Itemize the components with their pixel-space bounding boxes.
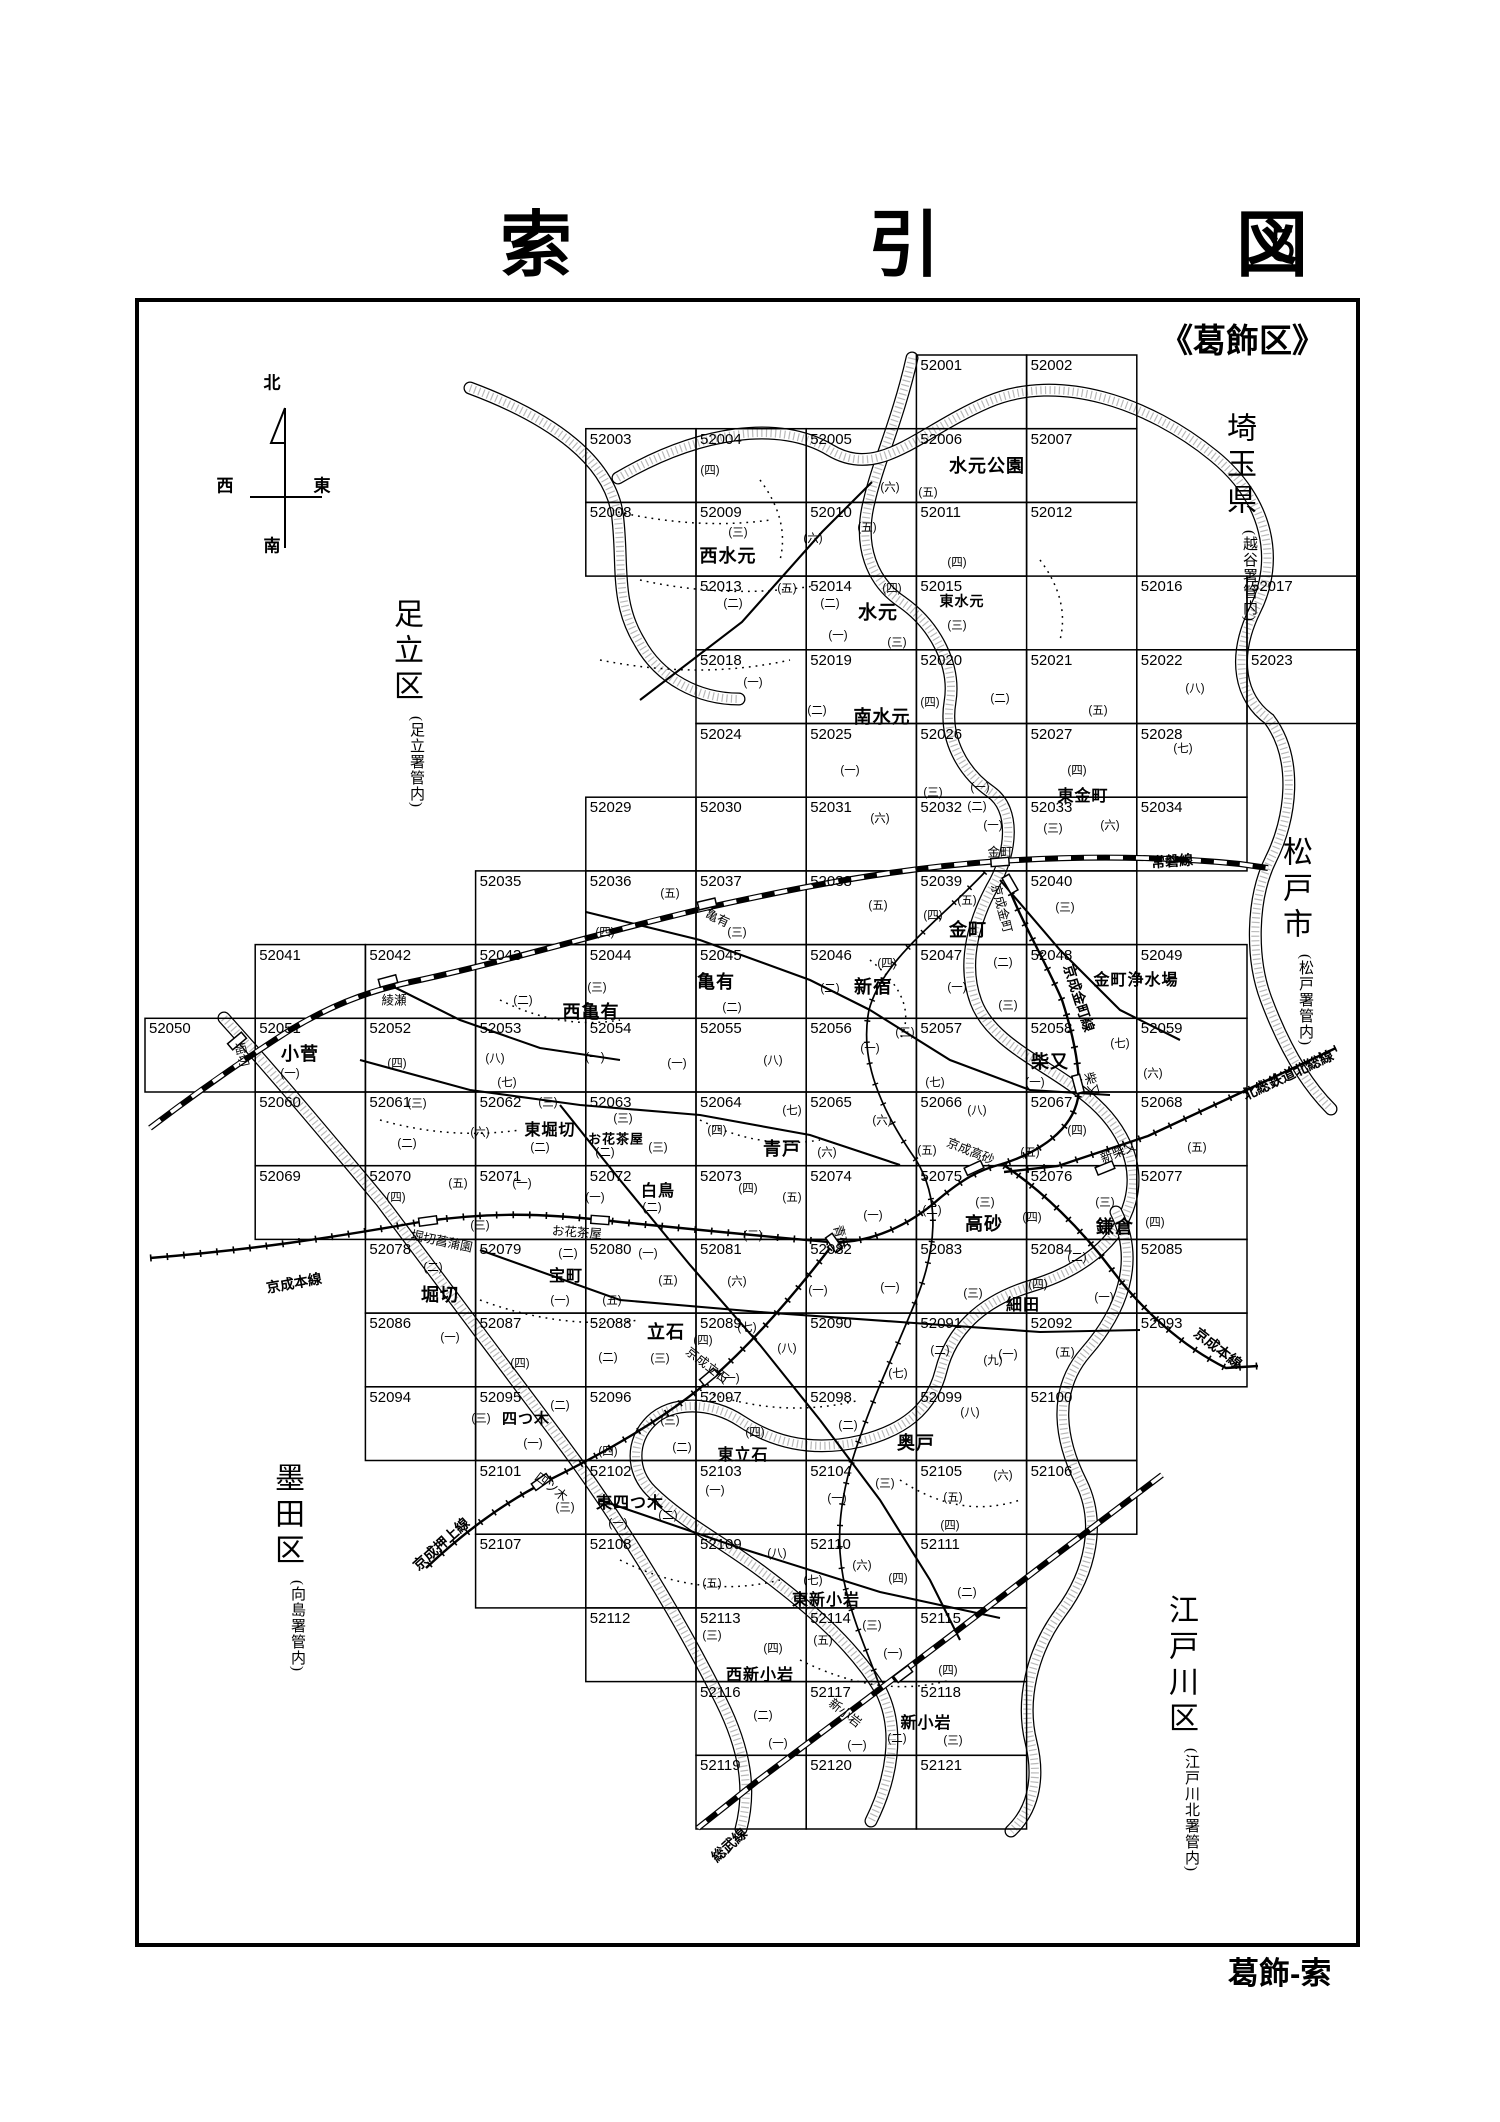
chome-label: (一)	[638, 1245, 657, 1261]
chome-label: (二)	[672, 1439, 691, 1455]
chome-label: (一)	[827, 1490, 846, 1506]
chome-label: (六)	[880, 479, 899, 495]
cell-number-52074: 52074	[810, 1168, 852, 1185]
chome-label: (一)	[550, 1292, 569, 1308]
chome-label: (三)	[587, 979, 606, 995]
cell-number-52095: 52095	[480, 1389, 522, 1406]
cell-number-52022: 52022	[1141, 652, 1183, 669]
cell-number-52107: 52107	[480, 1536, 522, 1553]
chome-label: (一)	[608, 1515, 627, 1531]
chome-label: (八)	[1185, 680, 1204, 696]
chome-label: (三)	[728, 524, 747, 540]
cell-number-52050: 52050	[149, 1020, 191, 1037]
cell-number-52048: 52048	[1031, 947, 1073, 964]
chome-label: (一)	[883, 1645, 902, 1661]
footer-label: 葛飾-索	[1228, 1948, 1331, 1993]
cell-number-52040: 52040	[1031, 873, 1073, 890]
chome-label: (七)	[1173, 740, 1192, 756]
cell-number-52119: 52119	[700, 1757, 741, 1774]
chome-label: (三)	[470, 1217, 489, 1233]
chome-label: (一)	[840, 762, 859, 778]
chome-label: (一)	[1094, 1289, 1113, 1305]
town-label-東金町: 東金町	[1057, 782, 1108, 806]
chome-label: (三)	[702, 1627, 721, 1643]
chome-label: (二)	[887, 1730, 906, 1746]
chome-label: (八)	[960, 1404, 979, 1420]
neighbor-region-足立区: 足立区(足立署管内)	[383, 598, 427, 808]
compass-label-南: 南	[264, 532, 281, 557]
chome-label: (二)	[930, 1342, 949, 1358]
compass-label-北: 北	[264, 369, 281, 394]
cell-number-52045: 52045	[700, 947, 742, 964]
cell-number-52025: 52025	[810, 726, 852, 743]
cell-number-52046: 52046	[810, 947, 852, 964]
chome-label: (一)	[705, 1482, 724, 1498]
chome-label: (二)	[550, 1397, 569, 1413]
station-label-お花茶屋: お花茶屋	[551, 1220, 602, 1242]
cell-number-52036: 52036	[590, 873, 632, 890]
chome-label: (一)	[808, 1282, 827, 1298]
cell-number-52020: 52020	[920, 652, 962, 669]
cell-number-52047: 52047	[920, 947, 962, 964]
chome-boundary-5	[1040, 560, 1063, 640]
town-label-細田: 細田	[1006, 1291, 1040, 1315]
neighbor-region-main: 松戸市	[1272, 836, 1316, 944]
cell-number-52057: 52057	[920, 1020, 962, 1037]
chome-label: (二)	[838, 1417, 857, 1433]
cell-number-52007: 52007	[1031, 431, 1073, 448]
cell-number-52087: 52087	[480, 1315, 522, 1332]
chome-label: (四)	[693, 1332, 712, 1348]
town-label-四つ木: 四つ木	[502, 1408, 550, 1429]
cell-number-52078: 52078	[369, 1241, 411, 1258]
chome-label: (一)	[880, 1279, 899, 1295]
cell-number-52005: 52005	[810, 431, 852, 448]
chome-label: (五)	[1187, 1139, 1206, 1155]
chome-label: (二)	[993, 954, 1012, 970]
chome-label: (四)	[738, 1180, 757, 1196]
station-label-金町: 金町	[987, 842, 1012, 861]
chome-label: (五)	[660, 885, 679, 901]
neighbor-region-埼玉県: 埼玉県(越谷署管内)	[1216, 412, 1260, 622]
chome-label: (三)	[875, 1475, 894, 1491]
town-label-亀有: 亀有	[697, 968, 735, 994]
cell-number-52069: 52069	[259, 1168, 301, 1185]
cell-number-52068: 52068	[1141, 1094, 1183, 1111]
chome-boundary-8	[380, 1120, 520, 1133]
neighbor-region-main: 江戸川区	[1158, 1594, 1202, 1738]
cell-number-52086: 52086	[369, 1315, 411, 1332]
town-label-東四つ木: 東四つ木	[596, 1489, 664, 1513]
chome-label: (二)	[722, 999, 741, 1015]
chome-label: (六)	[803, 530, 822, 546]
cell-number-52104: 52104	[810, 1463, 852, 1480]
cell-number-52010: 52010	[810, 504, 852, 521]
chome-label: (三)	[743, 1227, 762, 1243]
town-label-高砂: 高砂	[965, 1210, 1003, 1236]
cell-number-52116: 52116	[700, 1684, 741, 1701]
cell-number-52014: 52014	[810, 578, 852, 595]
chome-label: (四)	[510, 1355, 529, 1371]
town-label-東立石: 東立石	[717, 1441, 768, 1465]
chome-label: (八)	[767, 1545, 786, 1561]
chome-label: (六)	[727, 1273, 746, 1289]
cell-number-52056: 52056	[810, 1020, 852, 1037]
chome-label: (三)	[407, 1095, 426, 1111]
town-label-水元公園: 水元公園	[949, 452, 1025, 478]
chome-label: (五)	[702, 1575, 721, 1591]
town-label-立石: 立石	[647, 1318, 685, 1344]
cell-number-52003: 52003	[590, 431, 632, 448]
cell-number-52070: 52070	[369, 1168, 411, 1185]
cell-number-52063: 52063	[590, 1094, 632, 1111]
chome-label: (四)	[920, 694, 939, 710]
town-label-西亀有: 西亀有	[563, 998, 620, 1024]
compass-label-西: 西	[217, 472, 234, 497]
cell-number-52114: 52114	[810, 1610, 851, 1627]
neighbor-region-note: (江戸川北署管内)	[1158, 1748, 1202, 1872]
chome-label: (五)	[602, 1292, 621, 1308]
town-label-西水元: 西水元	[700, 542, 757, 568]
cell-number-52042: 52042	[369, 947, 411, 964]
chome-label: (八)	[485, 1050, 504, 1066]
cell-number-52039: 52039	[920, 873, 962, 890]
cell-number-52006: 52006	[920, 431, 962, 448]
cell-number-52109: 52109	[700, 1536, 742, 1553]
chome-label: (七)	[782, 1102, 801, 1118]
town-label-南水元: 南水元	[854, 703, 911, 729]
cell-number-52065: 52065	[810, 1094, 852, 1111]
cell-number-52011: 52011	[920, 504, 961, 521]
cell-number-52113: 52113	[700, 1610, 741, 1627]
chome-label: (二)	[598, 1349, 617, 1365]
cell-number-52121: 52121	[920, 1757, 962, 1774]
chome-label: (三)	[923, 784, 942, 800]
chome-label: (四)	[1067, 1122, 1086, 1138]
chome-label: (五)	[918, 484, 937, 500]
cell-number-52106: 52106	[1031, 1463, 1073, 1480]
region-tag: 《葛飾区》	[1160, 314, 1325, 362]
town-label-東水元: 東水元	[940, 591, 985, 611]
chome-label: (一)	[720, 1370, 739, 1386]
chome-label: (一)	[970, 779, 989, 795]
chome-label: (三)	[1043, 820, 1062, 836]
cell-number-52100: 52100	[1031, 1389, 1073, 1406]
chome-label: (三)	[613, 1110, 632, 1126]
cell-number-52064: 52064	[700, 1094, 742, 1111]
chome-label: (六)	[852, 1557, 871, 1573]
chome-label: (二)	[820, 980, 839, 996]
chome-label: (四)	[707, 1122, 726, 1138]
cell-number-52089: 52089	[700, 1315, 742, 1332]
cell-number-52024: 52024	[700, 726, 742, 743]
chome-label: (一)	[983, 817, 1002, 833]
chome-label: (五)	[1088, 702, 1107, 718]
chome-label: (四)	[1022, 1209, 1041, 1225]
cell-number-52102: 52102	[590, 1463, 632, 1480]
chome-label: (二)	[957, 1584, 976, 1600]
town-label-東新小岩: 東新小岩	[792, 1586, 860, 1610]
chome-label: (五)	[943, 1489, 962, 1505]
chome-label: (三)	[727, 924, 746, 940]
chome-label: (三)	[887, 634, 906, 650]
cell-number-52038: 52038	[810, 873, 852, 890]
cell-number-52060: 52060	[259, 1094, 301, 1111]
town-label-青戸: 青戸	[763, 1135, 801, 1161]
cell-number-52055: 52055	[700, 1020, 742, 1037]
cell-number-52019: 52019	[810, 652, 852, 669]
cell-number-52080: 52080	[590, 1241, 632, 1258]
cell-number-52021: 52021	[1031, 652, 1073, 669]
town-label-西新小岩: 西新小岩	[726, 1661, 794, 1685]
cell-number-52084: 52084	[1031, 1241, 1073, 1258]
cell-number-52013: 52013	[700, 578, 742, 595]
station-box-堀切菖蒲園	[419, 1216, 438, 1226]
cell-number-52090: 52090	[810, 1315, 852, 1332]
chome-label: (三)	[650, 1350, 669, 1366]
chome-label: (五)	[782, 1189, 801, 1205]
chome-label: (七)	[1110, 1035, 1129, 1051]
chome-label: (二)	[558, 1245, 577, 1261]
chome-label: (四)	[877, 955, 896, 971]
cell-number-52105: 52105	[920, 1463, 962, 1480]
town-label-柴又: 柴又	[1031, 1048, 1069, 1074]
chome-label: (四)	[1067, 762, 1086, 778]
town-label-金町浄水場: 金町浄水場	[1093, 966, 1178, 990]
compass-north-arrow	[271, 408, 285, 443]
chome-label: (一)	[585, 1049, 604, 1065]
town-label-奥戸: 奥戸	[897, 1429, 935, 1455]
cell-number-52111: 52111	[920, 1536, 960, 1553]
chome-label: (一)	[847, 1737, 866, 1753]
chome-label: (一)	[947, 979, 966, 995]
cell-number-52067: 52067	[1031, 1094, 1073, 1111]
chome-label: (三)	[947, 617, 966, 633]
cell-number-52085: 52085	[1141, 1241, 1183, 1258]
cell-number-52093: 52093	[1141, 1315, 1183, 1332]
cell-number-52032: 52032	[920, 799, 962, 816]
town-label-東堀切: 東堀切	[524, 1116, 575, 1140]
cell-number-52088: 52088	[590, 1315, 632, 1332]
chome-label: (三)	[963, 1285, 982, 1301]
chome-label: (八)	[763, 1052, 782, 1068]
chome-label: (六)	[817, 1144, 836, 1160]
chome-label: (五)	[1055, 1344, 1074, 1360]
cell-number-52083: 52083	[920, 1241, 962, 1258]
cell-number-52120: 52120	[810, 1757, 852, 1774]
chome-label: (四)	[888, 1570, 907, 1586]
keisei-oshiage-line	[426, 1248, 830, 1568]
chome-label: (四)	[595, 924, 614, 940]
cell-number-52018: 52018	[700, 652, 742, 669]
chome-label: (三)	[660, 1412, 679, 1428]
cell-number-52099: 52099	[920, 1389, 962, 1406]
town-label-鎌倉: 鎌倉	[1096, 1213, 1134, 1239]
cell-number-52097: 52097	[700, 1389, 742, 1406]
chome-label: (四)	[763, 1640, 782, 1656]
cell-number-52091: 52091	[920, 1315, 962, 1332]
chome-label: (三)	[862, 1617, 881, 1633]
cell-number-52092: 52092	[1031, 1315, 1073, 1332]
chome-label: (五)	[813, 1632, 832, 1648]
chome-boundary-4	[760, 480, 783, 560]
chome-label: (一)	[998, 1346, 1017, 1362]
chome-label: (四)	[1145, 1214, 1164, 1230]
chome-label: (一)	[743, 674, 762, 690]
chome-label: (一)	[440, 1329, 459, 1345]
cell-number-52044: 52044	[590, 947, 632, 964]
chome-label: (七)	[888, 1365, 907, 1381]
compass-label-東: 東	[314, 472, 331, 497]
chome-label: (六)	[1100, 817, 1119, 833]
chome-label: (一)	[863, 1207, 882, 1223]
chome-label: (一)	[667, 1055, 686, 1071]
cell-number-52012: 52012	[1031, 504, 1073, 521]
cell-number-52094: 52094	[369, 1389, 411, 1406]
cell-number-52043: 52043	[480, 947, 522, 964]
cell-number-52118: 52118	[920, 1684, 961, 1701]
cell-number-52053: 52053	[480, 1020, 522, 1037]
cell-number-52009: 52009	[700, 504, 742, 521]
cell-number-52031: 52031	[810, 799, 852, 816]
chome-label: (五)	[917, 1142, 936, 1158]
chome-label: (二)	[922, 1202, 941, 1218]
cell-number-52002: 52002	[1031, 357, 1073, 374]
chome-label: (四)	[745, 1424, 764, 1440]
cell-number-52073: 52073	[700, 1168, 742, 1185]
chome-label: (四)	[700, 462, 719, 478]
cell-number-52059: 52059	[1141, 1020, 1183, 1037]
neighbor-region-main: 足立区	[383, 598, 427, 706]
chome-label: (一)	[1025, 1074, 1044, 1090]
cell-number-52030: 52030	[700, 799, 742, 816]
cell-number-52051: 52051	[259, 1020, 301, 1037]
cell-number-52096: 52096	[590, 1389, 632, 1406]
cell-number-52081: 52081	[700, 1241, 742, 1258]
chome-label: (三)	[1095, 1194, 1114, 1210]
station-label-綾瀬: 綾瀬	[381, 990, 406, 1009]
chome-label: (六)	[870, 810, 889, 826]
cell-number-52112: 52112	[590, 1610, 631, 1627]
chome-boundary-3	[600, 660, 790, 670]
chome-label: (七)	[737, 1319, 756, 1335]
chome-label: (四)	[923, 907, 942, 923]
chome-label: (二)	[397, 1135, 416, 1151]
chome-label: (一)	[585, 1189, 604, 1205]
cell-number-52037: 52037	[700, 873, 742, 890]
keisei-oshiage-line-overlay	[426, 1248, 830, 1568]
chome-label: (二)	[658, 1507, 677, 1523]
chome-label: (七)	[803, 1572, 822, 1588]
chome-label: (四)	[947, 554, 966, 570]
chome-label: (二)	[595, 1144, 614, 1160]
chome-label: (二)	[1067, 1249, 1086, 1265]
town-label-金町: 金町	[949, 916, 987, 942]
cell-number-52108: 52108	[590, 1536, 632, 1553]
chome-label: (七)	[925, 1074, 944, 1090]
cell-number-52076: 52076	[1031, 1168, 1073, 1185]
cell-number-52101: 52101	[480, 1463, 522, 1480]
cell-number-52072: 52072	[590, 1168, 632, 1185]
neighbor-region-note: (越谷署管内)	[1216, 530, 1260, 622]
cell-number-52079: 52079	[480, 1241, 522, 1258]
chome-label: (二)	[990, 690, 1009, 706]
chome-label: (四)	[386, 1189, 405, 1205]
chome-label: (八)	[967, 1102, 986, 1118]
chome-label: (二)	[967, 798, 986, 814]
cell-number-52115: 52115	[920, 1610, 961, 1627]
cell-number-52023: 52023	[1251, 652, 1293, 669]
cell-number-52026: 52026	[920, 726, 962, 743]
cell-number-52052: 52052	[369, 1020, 411, 1037]
cell-number-52066: 52066	[920, 1094, 962, 1111]
chome-label: (五)	[868, 897, 887, 913]
chome-label: (二)	[723, 595, 742, 611]
chome-label: (二)	[642, 1199, 661, 1215]
chome-label: (二)	[530, 1139, 549, 1155]
neighbor-region-note: (足立署管内)	[383, 716, 427, 808]
cell-number-52016: 52016	[1141, 578, 1183, 595]
neighbor-region-江戸川区: 江戸川区(江戸川北署管内)	[1158, 1594, 1202, 1872]
cell-number-52008: 52008	[590, 504, 632, 521]
town-label-新宿: 新宿	[854, 973, 892, 999]
cell-number-52077: 52077	[1141, 1168, 1183, 1185]
cell-number-52098: 52098	[810, 1389, 852, 1406]
chome-label: (五)	[777, 580, 796, 596]
chome-label: (四)	[940, 1517, 959, 1533]
town-label-堀切: 堀切	[421, 1281, 459, 1307]
cell-number-52035: 52035	[480, 873, 522, 890]
chome-label: (一)	[860, 1040, 879, 1056]
chome-label: (二)	[513, 992, 532, 1008]
chome-label: (六)	[872, 1112, 891, 1128]
town-label-水元: 水元	[858, 598, 898, 625]
cell-number-52049: 52049	[1141, 947, 1183, 964]
chome-label: (三)	[895, 1024, 914, 1040]
cell-number-52034: 52034	[1141, 799, 1183, 816]
chome-label: (二)	[423, 1259, 442, 1275]
neighbor-region-note: (松戸署管内)	[1272, 954, 1316, 1046]
cell-number-52041: 52041	[259, 947, 301, 964]
chome-label: (二)	[820, 595, 839, 611]
chome-label: (二)	[753, 1707, 772, 1723]
cell-number-52062: 52062	[480, 1094, 522, 1111]
cell-number-52027: 52027	[1031, 726, 1073, 743]
cell-number-52075: 52075	[920, 1168, 962, 1185]
neighbor-region-main: 埼玉県	[1216, 412, 1260, 520]
chome-label: (一)	[512, 1175, 531, 1191]
cell-number-52004: 52004	[700, 431, 742, 448]
neighbor-region-note: (向島署管内)	[264, 1580, 308, 1672]
chome-label: (六)	[1143, 1065, 1162, 1081]
chome-label: (三)	[975, 1194, 994, 1210]
neighbor-region-墨田区: 墨田区(向島署管内)	[264, 1462, 308, 1672]
chome-label: (四)	[938, 1662, 957, 1678]
chome-label: (六)	[993, 1467, 1012, 1483]
railway-name-常磐線: 常磐線	[1150, 850, 1193, 873]
chome-label: (四)	[882, 580, 901, 596]
cell-number-52001: 52001	[920, 357, 962, 374]
chome-label: (五)	[857, 519, 876, 535]
chome-label: (四)	[598, 1443, 617, 1459]
chome-label: (四)	[387, 1055, 406, 1071]
chome-label: (三)	[538, 1094, 557, 1110]
index-map-page: 索 引 図 5 52001520025200352004520055200652…	[0, 0, 1500, 2122]
chome-label: (一)	[828, 627, 847, 643]
chome-label: (五)	[448, 1175, 467, 1191]
chome-label: (四)	[1028, 1276, 1047, 1292]
chome-label: (六)	[470, 1124, 489, 1140]
